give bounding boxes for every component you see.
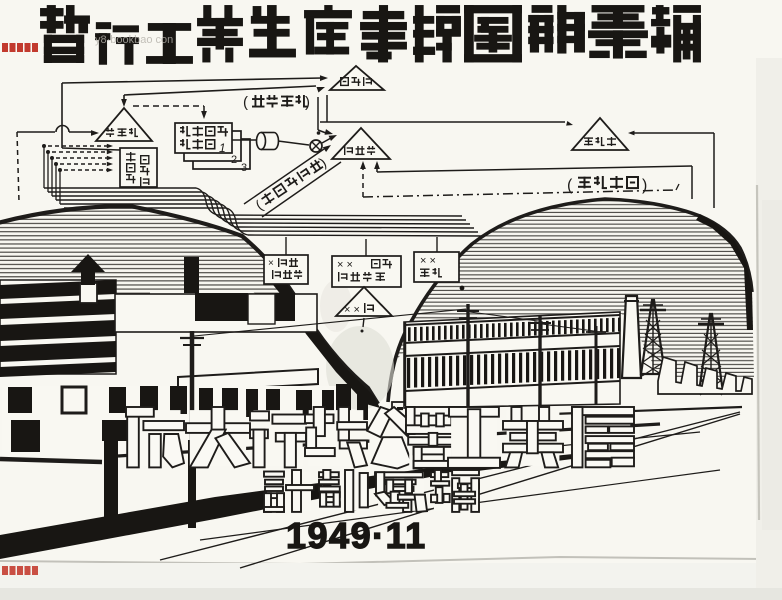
svg-text:× ×: × × [337, 259, 353, 271]
svg-text:): ) [305, 94, 310, 111]
svg-text:1: 1 [219, 141, 226, 155]
svg-text:×: × [268, 258, 274, 269]
svg-text:y8·bookbao con: y8·bookbao con [95, 34, 173, 46]
svg-text:): ) [642, 177, 647, 194]
svg-text:1949·11: 1949·11 [286, 515, 427, 556]
svg-text:3: 3 [241, 162, 247, 174]
svg-text:2: 2 [231, 154, 237, 166]
svg-text:× ×: × × [344, 304, 360, 316]
svg-text:(: ( [243, 94, 248, 111]
svg-text:× ×: × × [420, 255, 436, 267]
svg-text:(: ( [567, 177, 573, 194]
